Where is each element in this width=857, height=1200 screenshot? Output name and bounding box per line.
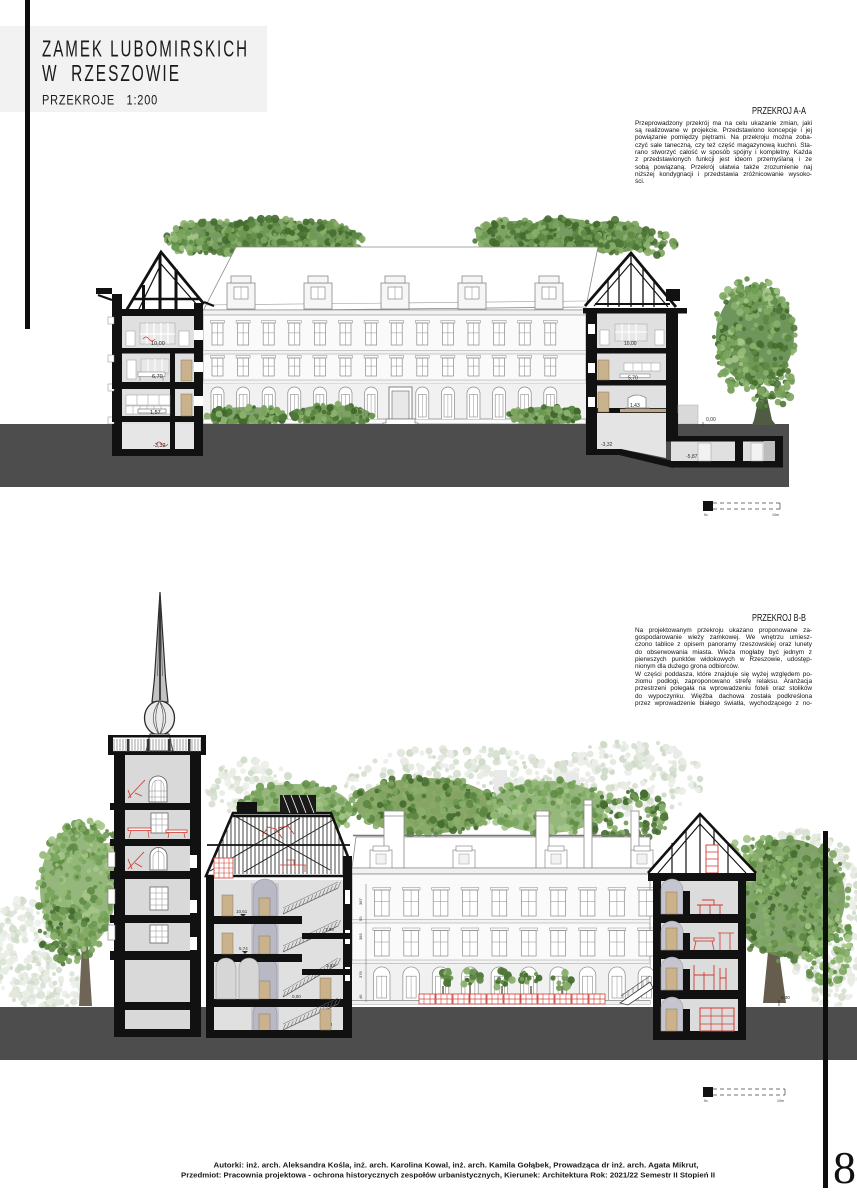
svg-text:1,57: 1,57 (150, 410, 161, 416)
svg-text:6,70: 6,70 (152, 374, 163, 380)
svg-text:1,43: 1,43 (630, 403, 640, 409)
svg-text:46: 46 (358, 994, 363, 999)
svg-text:5x: 5x (704, 513, 708, 517)
svg-text:385: 385 (358, 933, 363, 940)
svg-text:PRZEKROJE 1:200: PRZEKROJE 1:200 (42, 93, 158, 108)
svg-text:10,00: 10,00 (624, 341, 637, 347)
svg-text:PRZEKROJ B-B: PRZEKROJ B-B (752, 613, 806, 624)
svg-text:5,70: 5,70 (628, 376, 638, 382)
svg-text:-3,32: -3,32 (601, 442, 613, 448)
svg-text:W RZESZOWIE: W RZESZOWIE (42, 60, 181, 86)
svg-text:PRZEKROJ A-A: PRZEKROJ A-A (752, 106, 806, 117)
svg-text:0,00: 0,00 (706, 417, 716, 423)
svg-text:10,00: 10,00 (151, 341, 165, 347)
svg-text:10m: 10m (772, 513, 779, 517)
svg-text:ZAMEK LUBOMIRSKICH: ZAMEK LUBOMIRSKICH (42, 36, 249, 62)
svg-text:387: 387 (358, 898, 363, 905)
svg-text:-3,32: -3,32 (153, 443, 166, 449)
svg-text:376: 376 (358, 971, 363, 978)
svg-text:50: 50 (358, 916, 363, 921)
svg-text:-5,87: -5,87 (686, 454, 698, 460)
